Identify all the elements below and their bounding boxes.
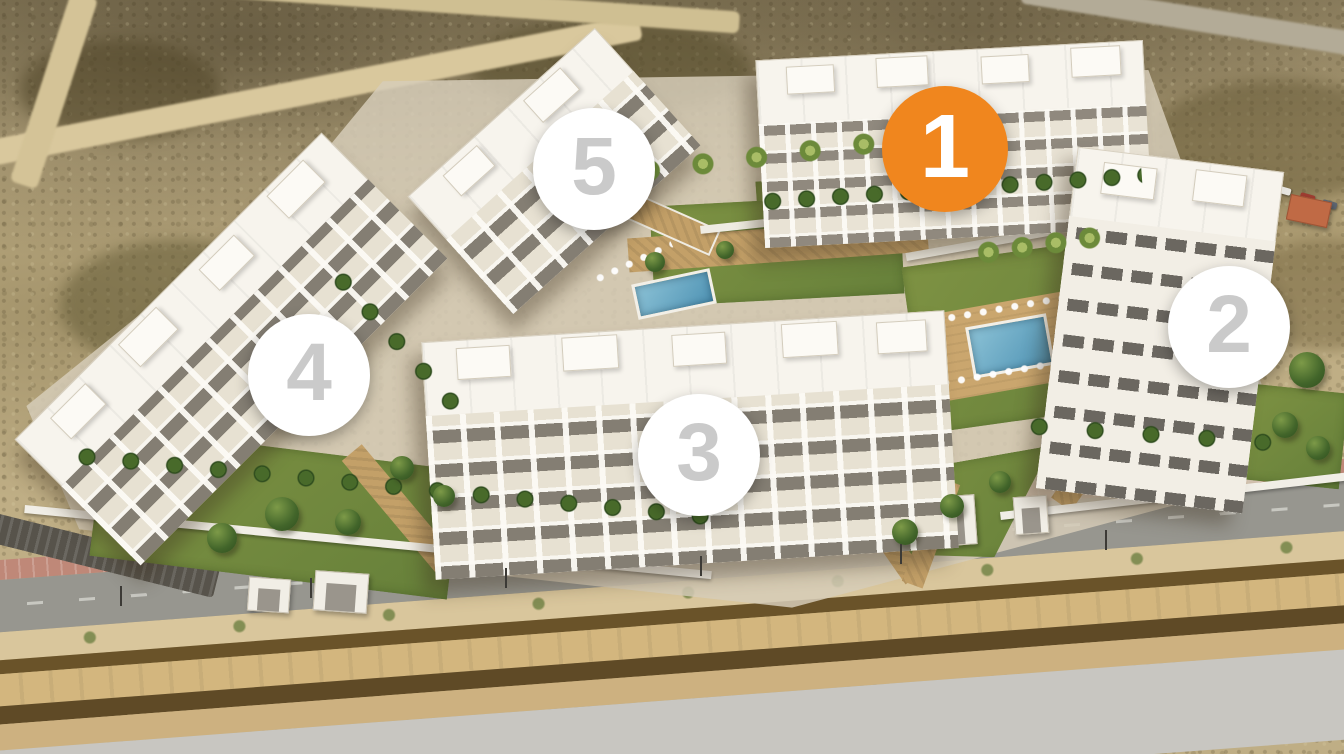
street-lamp [1105, 530, 1107, 550]
tree [207, 523, 237, 553]
marker-building-1-number: 1 [920, 102, 970, 196]
roof-structure [980, 54, 1029, 84]
tree [1289, 352, 1325, 388]
marker-building-3-number: 3 [676, 412, 722, 498]
tree [1272, 412, 1298, 438]
marker-building-1[interactable]: 1 [882, 86, 1008, 212]
roof-structure [456, 345, 512, 380]
marker-building-2[interactable]: 2 [1168, 266, 1290, 388]
marker-building-4[interactable]: 4 [248, 314, 370, 436]
marker-building-2-number: 2 [1206, 284, 1252, 370]
roof-structure [1070, 45, 1122, 78]
tree [940, 494, 964, 518]
street-lamp [120, 586, 122, 606]
roof-structure [876, 319, 928, 354]
entrance-gate [313, 570, 370, 614]
street-lamp [900, 544, 902, 564]
tree [1306, 436, 1330, 460]
tree [265, 497, 299, 531]
marker-building-4-number: 4 [286, 332, 332, 418]
pedestrian-gate [247, 577, 291, 614]
tree [989, 471, 1011, 493]
roof-structure [875, 55, 928, 88]
tree [433, 485, 455, 507]
tree [716, 241, 734, 259]
street-lamp [310, 578, 312, 598]
pedestrian-gate [1013, 495, 1050, 535]
roof-structure [561, 334, 619, 371]
marker-building-5-number: 5 [571, 126, 617, 212]
roof-structure [1192, 169, 1248, 207]
development-aerial-view: 1 2 3 4 5 [0, 0, 1344, 754]
tree [645, 252, 665, 272]
roof-structure [781, 321, 839, 358]
tree [892, 519, 918, 545]
marker-building-5[interactable]: 5 [533, 108, 655, 230]
roof-structure [671, 332, 727, 367]
roof-structure [786, 64, 835, 94]
tree [335, 509, 361, 535]
marker-building-3[interactable]: 3 [638, 394, 760, 516]
street-lamp [505, 568, 507, 588]
street-lamp [700, 556, 702, 576]
tree [390, 456, 414, 480]
